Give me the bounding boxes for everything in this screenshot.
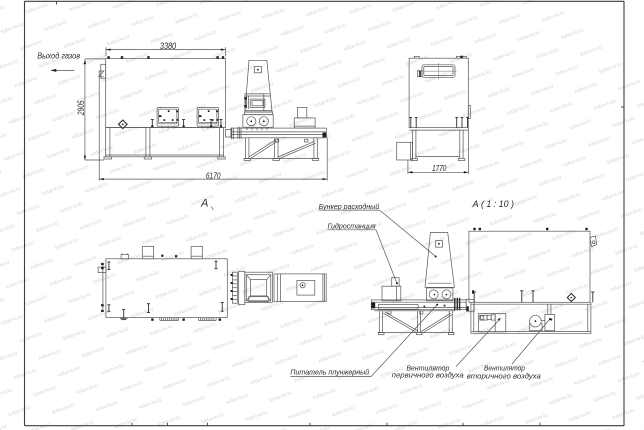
svg-text:kotlan-kv.kz: kotlan-kv.kz	[549, 393, 573, 407]
svg-text:kotlan-kv.kz: kotlan-kv.kz	[232, 63, 256, 77]
svg-text:kotlan-kv.kz: kotlan-kv.kz	[617, 371, 641, 385]
svg-text:kotlan-kv.kz: kotlan-kv.kz	[112, 289, 136, 303]
svg-text:kotlan-kv.kz: kotlan-kv.kz	[332, 405, 356, 419]
svg-text:kotlan-kv.kz: kotlan-kv.kz	[468, 69, 492, 83]
svg-text:kotlan-kv.kz: kotlan-kv.kz	[76, 382, 100, 396]
svg-text:Выход газов: Выход газов	[37, 51, 80, 60]
svg-text:kotlan-kv.kz: kotlan-kv.kz	[88, 17, 112, 31]
svg-text:kotlan-kv.kz: kotlan-kv.kz	[593, 98, 617, 112]
svg-text:kotlan-kv.kz: kotlan-kv.kz	[299, 333, 323, 347]
svg-text:kotlan-kv.kz: kotlan-kv.kz	[384, 201, 408, 215]
svg-text:kotlan-kv.kz: kotlan-kv.kz	[185, 230, 209, 244]
svg-text:kotlan-kv.kz: kotlan-kv.kz	[357, 93, 381, 107]
svg-text:kotlan-kv.kz: kotlan-kv.kz	[400, 383, 424, 397]
svg-text:kotlan-kv.kz: kotlan-kv.kz	[623, 334, 644, 348]
svg-text:kotlan-kv.kz: kotlan-kv.kz	[324, 314, 348, 328]
svg-text:kotlan-kv.kz: kotlan-kv.kz	[389, 164, 413, 178]
svg-text:kotlan-kv.kz: kotlan-kv.kz	[71, 419, 95, 430]
svg-text:kotlan-kv.kz: kotlan-kv.kz	[300, 41, 324, 55]
svg-text:kotlan-kv.kz: kotlan-kv.kz	[405, 346, 429, 360]
svg-text:kotlan-kv.kz: kotlan-kv.kz	[237, 319, 261, 333]
svg-text:kotlan-kv.kz: kotlan-kv.kz	[107, 34, 131, 48]
svg-text:kotlan-kv.kz: kotlan-kv.kz	[582, 172, 606, 186]
svg-text:kotlan-kv.kz: kotlan-kv.kz	[0, 259, 11, 273]
svg-text:kotlan-kv.kz: kotlan-kv.kz	[560, 319, 584, 333]
svg-text:kotlan-kv.kz: kotlan-kv.kz	[563, 155, 587, 169]
svg-text:kotlan-kv.kz: kotlan-kv.kz	[272, 225, 296, 239]
svg-text:kotlan-kv.kz: kotlan-kv.kz	[327, 149, 351, 163]
svg-text:kotlan-kv.kz: kotlan-kv.kz	[313, 95, 337, 109]
svg-text:kotlan-kv.kz: kotlan-kv.kz	[348, 294, 372, 308]
svg-text:kotlan-kv.kz: kotlan-kv.kz	[569, 118, 593, 132]
svg-text:kotlan-kv.kz: kotlan-kv.kz	[188, 358, 212, 372]
svg-text:kotlan-kv.kz: kotlan-kv.kz	[63, 36, 87, 50]
svg-text:kotlan-kv.kz: kotlan-kv.kz	[419, 400, 443, 414]
svg-text:kotlan-kv.kz: kotlan-kv.kz	[28, 129, 52, 143]
svg-text:kotlan-kv.kz: kotlan-kv.kz	[19, 331, 43, 345]
svg-text:kotlan-kv.kz: kotlan-kv.kz	[501, 140, 525, 154]
svg-text:kotlan-kv.kz: kotlan-kv.kz	[365, 184, 389, 198]
svg-text:kotlan-kv.kz: kotlan-kv.kz	[109, 161, 133, 175]
svg-text:kotlan-kv.kz: kotlan-kv.kz	[142, 233, 166, 247]
svg-text:kotlan-kv.kz: kotlan-kv.kz	[234, 191, 258, 205]
svg-text:kotlan-kv.kz: kotlan-kv.kz	[87, 309, 111, 323]
svg-text:kotlan-kv.kz: kotlan-kv.kz	[525, 412, 549, 426]
svg-text:kotlan-kv.kz: kotlan-kv.kz	[346, 167, 370, 181]
svg-text:kotlan-kv.kz: kotlan-kv.kz	[335, 240, 359, 254]
svg-text:kotlan-kv.kz: kotlan-kv.kz	[33, 93, 57, 107]
svg-text:kotlan-kv.kz: kotlan-kv.kz	[180, 267, 204, 281]
svg-text:kotlan-kv.kz: kotlan-kv.kz	[307, 424, 331, 430]
svg-text:kotlan-kv.kz: kotlan-kv.kz	[25, 2, 49, 16]
svg-text:kotlan-kv.kz: kotlan-kv.kz	[120, 88, 144, 102]
svg-text:kotlan-kv.kz: kotlan-kv.kz	[321, 186, 345, 200]
svg-text:kotlan-kv.kz: kotlan-kv.kz	[125, 343, 149, 357]
svg-text:kotlan-kv.kz: kotlan-kv.kz	[60, 201, 84, 215]
svg-text:kotlan-kv.kz: kotlan-kv.kz	[392, 0, 416, 14]
svg-text:kotlan-kv.kz: kotlan-kv.kz	[218, 9, 242, 23]
svg-text:kotlan-kv.kz: kotlan-kv.kz	[52, 402, 76, 416]
svg-text:kotlan-kv.kz: kotlan-kv.kz	[36, 220, 60, 234]
svg-text:kotlan-kv.kz: kotlan-kv.kz	[476, 159, 500, 173]
svg-text:Гидростанция: Гидростанция	[328, 222, 376, 231]
svg-text:1770: 1770	[432, 163, 446, 173]
svg-text:kotlan-kv.kz: kotlan-kv.kz	[291, 243, 315, 257]
svg-text:kotlan-kv.kz: kotlan-kv.kz	[419, 108, 443, 122]
svg-text:kotlan-kv.kz: kotlan-kv.kz	[631, 425, 644, 430]
svg-text:kotlan-kv.kz: kotlan-kv.kz	[558, 191, 582, 205]
svg-text:kotlan-kv.kz: kotlan-kv.kz	[201, 412, 225, 426]
svg-text:kotlan-kv.kz: kotlan-kv.kz	[598, 353, 622, 367]
svg-text:kotlan-kv.kz: kotlan-kv.kz	[362, 348, 386, 362]
svg-text:kotlan-kv.kz: kotlan-kv.kz	[408, 181, 432, 195]
svg-text:kotlan-kv.kz: kotlan-kv.kz	[245, 409, 269, 423]
svg-text:kotlan-kv.kz: kotlan-kv.kz	[44, 19, 68, 33]
svg-text:kotlan-kv.kz: kotlan-kv.kz	[522, 285, 546, 299]
svg-text:kotlan-kv.kz: kotlan-kv.kz	[6, 277, 30, 291]
svg-text:kotlan-kv.kz: kotlan-kv.kz	[397, 255, 421, 269]
svg-text:kotlan-kv.kz: kotlan-kv.kz	[114, 417, 138, 430]
svg-text:kotlan-kv.kz: kotlan-kv.kz	[329, 277, 353, 291]
svg-text:kotlan-kv.kz: kotlan-kv.kz	[639, 223, 644, 237]
svg-text:kotlan-kv.kz: kotlan-kv.kz	[368, 19, 392, 33]
svg-text:kotlan-kv.kz: kotlan-kv.kz	[79, 218, 103, 232]
svg-text:kotlan-kv.kz: kotlan-kv.kz	[278, 189, 302, 203]
svg-text:kotlan-kv.kz: kotlan-kv.kz	[544, 137, 568, 151]
svg-text:kotlan-kv.kz: kotlan-kv.kz	[286, 279, 310, 293]
svg-text:kotlan-kv.kz: kotlan-kv.kz	[449, 343, 473, 357]
svg-text:kotlan-kv.kz: kotlan-kv.kz	[362, 56, 386, 70]
svg-text:kotlan-kv.kz: kotlan-kv.kz	[47, 147, 71, 161]
svg-text:kotlan-kv.kz: kotlan-kv.kz	[462, 397, 486, 411]
svg-text:А ( 1 : 10 ): А ( 1 : 10 )	[472, 199, 514, 210]
svg-text:kotlan-kv.kz: kotlan-kv.kz	[430, 34, 454, 48]
svg-text:kotlan-kv.kz: kotlan-kv.kz	[8, 404, 32, 418]
svg-text:Питатель плунжерный: Питатель плунжерный	[290, 368, 369, 377]
svg-text:kotlan-kv.kz: kotlan-kv.kz	[131, 14, 155, 28]
svg-text:kotlan-kv.kz: kotlan-kv.kz	[599, 61, 623, 75]
svg-text:kotlan-kv.kz: kotlan-kv.kz	[172, 176, 196, 190]
svg-text:kotlan-kv.kz: kotlan-kv.kz	[242, 282, 266, 296]
svg-text:kotlan-kv.kz: kotlan-kv.kz	[85, 181, 109, 195]
svg-text:kotlan-kv.kz: kotlan-kv.kz	[289, 115, 313, 129]
svg-text:kotlan-kv.kz: kotlan-kv.kz	[536, 339, 560, 353]
svg-text:kotlan-kv.kz: kotlan-kv.kz	[41, 183, 65, 197]
svg-text:kotlan-kv.kz: kotlan-kv.kz	[550, 101, 574, 115]
svg-text:kotlan-kv.kz: kotlan-kv.kz	[634, 260, 644, 274]
svg-text:kotlan-kv.kz: kotlan-kv.kz	[585, 299, 609, 313]
svg-text:kotlan-kv.kz: kotlan-kv.kz	[403, 218, 427, 232]
svg-text:kotlan-kv.kz: kotlan-kv.kz	[555, 64, 579, 78]
svg-text:kotlan-kv.kz: kotlan-kv.kz	[101, 71, 125, 85]
svg-text:kotlan-kv.kz: kotlan-kv.kz	[318, 351, 342, 365]
svg-text:kotlan-kv.kz: kotlan-kv.kz	[229, 228, 253, 242]
svg-text:kotlan-kv.kz: kotlan-kv.kz	[33, 385, 57, 399]
svg-text:Бункер расходный: Бункер расходный	[319, 202, 380, 211]
svg-text:kotlan-kv.kz: kotlan-kv.kz	[11, 240, 35, 254]
svg-text:kotlan-kv.kz: kotlan-kv.kz	[155, 287, 179, 301]
svg-text:kotlan-kv.kz: kotlan-kv.kz	[492, 341, 516, 355]
svg-text:kotlan-kv.kz: kotlan-kv.kz	[262, 7, 286, 21]
svg-text:kotlan-kv.kz: kotlan-kv.kz	[269, 390, 293, 404]
svg-text:kotlan-kv.kz: kotlan-kv.kz	[533, 211, 557, 225]
svg-text:kotlan-kv.kz: kotlan-kv.kz	[204, 247, 228, 261]
svg-text:kotlan-kv.kz: kotlan-kv.kz	[609, 280, 633, 294]
svg-text:kotlan-kv.kz: kotlan-kv.kz	[253, 208, 277, 222]
svg-text:kotlan-kv.kz: kotlan-kv.kz	[571, 245, 595, 259]
svg-text:kotlan-kv.kz: kotlan-kv.kz	[509, 231, 533, 245]
svg-text:kotlan-kv.kz: kotlan-kv.kz	[297, 206, 321, 220]
svg-text:kotlan-kv.kz: kotlan-kv.kz	[52, 110, 76, 124]
svg-text:kotlan-kv.kz: kotlan-kv.kz	[58, 73, 82, 87]
svg-text:kotlan-kv.kz: kotlan-kv.kz	[194, 29, 218, 43]
svg-text:A: A	[200, 197, 208, 209]
svg-text:kotlan-kv.kz: kotlan-kv.kz	[479, 287, 503, 301]
svg-text:kotlan-kv.kz: kotlan-kv.kz	[482, 123, 506, 137]
svg-text:kotlan-kv.kz: kotlan-kv.kz	[294, 78, 318, 92]
svg-text:kotlan-kv.kz: kotlan-kv.kz	[495, 177, 519, 191]
svg-text:kotlan-kv.kz: kotlan-kv.kz	[324, 22, 348, 36]
svg-text:kotlan-kv.kz: kotlan-kv.kz	[425, 71, 449, 85]
svg-text:kotlan-kv.kz: kotlan-kv.kz	[520, 157, 544, 171]
svg-text:kotlan-kv.kz: kotlan-kv.kz	[248, 245, 272, 259]
svg-text:kotlan-kv.kz: kotlan-kv.kz	[163, 377, 187, 391]
svg-text:kotlan-kv.kz: kotlan-kv.kz	[555, 356, 579, 370]
svg-text:kotlan-kv.kz: kotlan-kv.kz	[126, 51, 150, 65]
svg-text:kotlan-kv.kz: kotlan-kv.kz	[452, 179, 476, 193]
svg-text:kotlan-kv.kz: kotlan-kv.kz	[207, 375, 231, 389]
svg-text:kotlan-kv.kz: kotlan-kv.kz	[104, 198, 128, 212]
svg-text:kotlan-kv.kz: kotlan-kv.kz	[310, 260, 334, 274]
svg-text:kotlan-kv.kz: kotlan-kv.kz	[281, 24, 305, 38]
svg-text:kotlan-kv.kz: kotlan-kv.kz	[392, 292, 416, 306]
svg-text:kotlan-kv.kz: kotlan-kv.kz	[615, 243, 639, 257]
svg-text:kotlan-kv.kz: kotlan-kv.kz	[0, 424, 8, 430]
svg-text:kotlan-kv.kz: kotlan-kv.kz	[212, 338, 236, 352]
svg-text:kotlan-kv.kz: kotlan-kv.kz	[240, 154, 264, 168]
svg-text:kotlan-kv.kz: kotlan-kv.kz	[63, 328, 87, 342]
svg-text:kotlan-kv.kz: kotlan-kv.kz	[174, 304, 198, 318]
svg-text:kotlan-kv.kz: kotlan-kv.kz	[226, 392, 250, 406]
svg-text:kotlan-kv.kz: kotlan-kv.kz	[147, 196, 171, 210]
svg-text:kotlan-kv.kz: kotlan-kv.kz	[117, 252, 141, 266]
svg-text:kotlan-kv.kz: kotlan-kv.kz	[637, 96, 644, 110]
svg-text:kotlan-kv.kz: kotlan-kv.kz	[514, 194, 538, 208]
svg-text:kotlan-kv.kz: kotlan-kv.kz	[44, 311, 68, 325]
svg-text:kotlan-kv.kz: kotlan-kv.kz	[539, 174, 563, 188]
svg-text:kotlan-kv.kz: kotlan-kv.kz	[123, 215, 147, 229]
svg-text:kotlan-kv.kz: kotlan-kv.kz	[381, 73, 405, 87]
svg-text:kotlan-kv.kz: kotlan-kv.kz	[193, 321, 217, 335]
svg-text:kotlan-kv.kz: kotlan-kv.kz	[22, 166, 46, 180]
svg-text:kotlan-kv.kz: kotlan-kv.kz	[628, 297, 644, 311]
svg-text:kotlan-kv.kz: kotlan-kv.kz	[250, 373, 274, 387]
svg-text:kotlan-kv.kz: kotlan-kv.kz	[607, 152, 631, 166]
svg-text:kotlan-kv.kz: kotlan-kv.kz	[446, 216, 470, 230]
svg-text:kotlan-kv.kz: kotlan-kv.kz	[237, 27, 261, 41]
svg-text:kotlan-kv.kz: kotlan-kv.kz	[0, 4, 6, 18]
svg-text:kotlan-kv.kz: kotlan-kv.kz	[531, 83, 555, 97]
svg-text:kotlan-kv.kz: kotlan-kv.kz	[136, 269, 160, 283]
svg-text:kotlan-kv.kz: kotlan-kv.kz	[256, 44, 280, 58]
svg-text:kotlan-kv.kz: kotlan-kv.kz	[270, 98, 294, 112]
svg-text:kotlan-kv.kz: kotlan-kv.kz	[251, 81, 275, 95]
svg-text:kotlan-kv.kz: kotlan-kv.kz	[626, 169, 644, 183]
svg-text:kotlan-kv.kz: kotlan-kv.kz	[338, 76, 362, 90]
svg-text:kotlan-kv.kz: kotlan-kv.kz	[438, 125, 462, 139]
svg-text:kotlan-kv.kz: kotlan-kv.kz	[590, 263, 614, 277]
svg-text:kotlan-kv.kz: kotlan-kv.kz	[481, 415, 505, 429]
svg-text:kotlan-kv.kz: kotlan-kv.kz	[93, 272, 117, 286]
svg-text:kotlan-kv.kz: kotlan-kv.kz	[166, 213, 190, 227]
svg-text:kotlan-kv.kz: kotlan-kv.kz	[354, 257, 378, 271]
svg-text:kotlan-kv.kz: kotlan-kv.kz	[139, 397, 163, 411]
svg-text:kotlan-kv.kz: kotlan-kv.kz	[484, 250, 508, 264]
svg-text:kotlan-kv.kz: kotlan-kv.kz	[68, 291, 92, 305]
svg-text:kotlan-kv.kz: kotlan-kv.kz	[332, 113, 356, 127]
svg-text:kotlan-kv.kz: kotlan-kv.kz	[343, 331, 367, 345]
svg-text:kotlan-kv.kz: kotlan-kv.kz	[416, 272, 440, 286]
svg-text:kotlan-kv.kz: kotlan-kv.kz	[517, 29, 541, 43]
svg-text:kotlan-kv.kz: kotlan-kv.kz	[528, 248, 552, 262]
svg-text:kotlan-kv.kz: kotlan-kv.kz	[182, 395, 206, 409]
svg-text:kotlan-kv.kz: kotlan-kv.kz	[313, 387, 337, 401]
svg-text:kotlan-kv.kz: kotlan-kv.kz	[221, 137, 245, 151]
svg-text:kotlan-kv.kz: kotlan-kv.kz	[498, 12, 522, 26]
svg-text:6170: 6170	[206, 170, 221, 180]
svg-text:kotlan-kv.kz: kotlan-kv.kz	[231, 355, 255, 369]
svg-text:kotlan-kv.kz: kotlan-kv.kz	[370, 147, 394, 161]
svg-text:kotlan-kv.kz: kotlan-kv.kz	[25, 294, 49, 308]
svg-text:kotlan-kv.kz: kotlan-kv.kz	[0, 95, 14, 109]
svg-text:kotlan-kv.kz: kotlan-kv.kz	[542, 10, 566, 24]
svg-text:kotlan-kv.kz: kotlan-kv.kz	[57, 365, 81, 379]
svg-text:kotlan-kv.kz: kotlan-kv.kz	[161, 250, 185, 264]
svg-text:kotlan-kv.kz: kotlan-kv.kz	[593, 390, 617, 404]
svg-text:kotlan-kv.kz: kotlan-kv.kz	[0, 186, 22, 200]
svg-text:kotlan-kv.kz: kotlan-kv.kz	[506, 103, 530, 117]
svg-text:kotlan-kv.kz: kotlan-kv.kz	[580, 44, 604, 58]
svg-text:kotlan-kv.kz: kotlan-kv.kz	[386, 329, 410, 343]
svg-text:kotlan-kv.kz: kotlan-kv.kz	[9, 112, 33, 126]
svg-text:kotlan-kv.kz: kotlan-kv.kz	[177, 139, 201, 153]
svg-text:kotlan-kv.kz: kotlan-kv.kz	[577, 209, 601, 223]
svg-text:kotlan-kv.kz: kotlan-kv.kz	[30, 257, 54, 271]
svg-text:kotlan-kv.kz: kotlan-kv.kz	[568, 410, 592, 424]
svg-text:kotlan-kv.kz: kotlan-kv.kz	[115, 125, 139, 139]
svg-text:kotlan-kv.kz: kotlan-kv.kz	[349, 2, 373, 16]
svg-text:kotlan-kv.kz: kotlan-kv.kz	[120, 380, 144, 394]
svg-text:kotlan-kv.kz: kotlan-kv.kz	[17, 203, 41, 217]
svg-text:kotlan-kv.kz: kotlan-kv.kz	[395, 127, 419, 141]
svg-text:kotlan-kv.kz: kotlan-kv.kz	[444, 88, 468, 102]
svg-text:kotlan-kv.kz: kotlan-kv.kz	[145, 68, 169, 82]
svg-text:kotlan-kv.kz: kotlan-kv.kz	[376, 110, 400, 124]
svg-text:kotlan-kv.kz: kotlan-kv.kz	[14, 367, 38, 381]
svg-text:kotlan-kv.kz: kotlan-kv.kz	[153, 159, 177, 173]
svg-text:kotlan-kv.kz: kotlan-kv.kz	[275, 61, 299, 75]
svg-text:kotlan-kv.kz: kotlan-kv.kz	[1, 21, 25, 35]
svg-text:kotlan-kv.kz: kotlan-kv.kz	[49, 274, 73, 288]
svg-text:kotlan-kv.kz: kotlan-kv.kz	[0, 387, 13, 401]
svg-text:первичного воздуха: первичного воздуха	[392, 370, 464, 379]
svg-text:kotlan-kv.kz: kotlan-kv.kz	[438, 417, 462, 430]
svg-text:вторичного воздуха: вторичного воздуха	[467, 371, 541, 380]
svg-text:kotlan-kv.kz: kotlan-kv.kz	[55, 237, 79, 251]
svg-text:kotlan-kv.kz: kotlan-kv.kz	[302, 169, 326, 183]
svg-text:kotlan-kv.kz: kotlan-kv.kz	[259, 171, 283, 185]
svg-text:2905: 2905	[76, 100, 86, 116]
svg-text:kotlan-kv.kz: kotlan-kv.kz	[566, 282, 590, 296]
svg-text:kotlan-kv.kz: kotlan-kv.kz	[435, 289, 459, 303]
svg-text:kotlan-kv.kz: kotlan-kv.kz	[66, 164, 90, 178]
svg-text:kotlan-kv.kz: kotlan-kv.kz	[512, 66, 536, 80]
svg-text:kotlan-kv.kz: kotlan-kv.kz	[101, 363, 125, 377]
svg-text:kotlan-kv.kz: kotlan-kv.kz	[351, 130, 375, 144]
svg-text:kotlan-kv.kz: kotlan-kv.kz	[596, 226, 620, 240]
svg-text:kotlan-kv.kz: kotlan-kv.kz	[199, 284, 223, 298]
svg-text:kotlan-kv.kz: kotlan-kv.kz	[188, 66, 212, 80]
svg-text:kotlan-kv.kz: kotlan-kv.kz	[343, 39, 367, 53]
svg-text:kotlan-kv.kz: kotlan-kv.kz	[430, 326, 454, 340]
svg-text:kotlan-kv.kz: kotlan-kv.kz	[106, 326, 130, 340]
svg-text:kotlan-kv.kz: kotlan-kv.kz	[82, 53, 106, 67]
svg-text:kotlan-kv.kz: kotlan-kv.kz	[493, 49, 517, 63]
svg-text:kotlan-kv.kz: kotlan-kv.kz	[498, 304, 522, 318]
svg-text:kotlan-kv.kz: kotlan-kv.kz	[82, 345, 106, 359]
svg-text:kotlan-kv.kz: kotlan-kv.kz	[411, 17, 435, 31]
svg-text:kotlan-kv.kz: kotlan-kv.kz	[98, 235, 122, 249]
svg-text:kotlan-kv.kz: kotlan-kv.kz	[264, 135, 288, 149]
svg-text:kotlan-kv.kz: kotlan-kv.kz	[196, 157, 220, 171]
svg-text:kotlan-kv.kz: kotlan-kv.kz	[525, 120, 549, 134]
svg-text:kotlan-kv.kz: kotlan-kv.kz	[574, 373, 598, 387]
svg-text:kotlan-kv.kz: kotlan-kv.kz	[164, 85, 188, 99]
svg-text:kotlan-kv.kz: kotlan-kv.kz	[305, 5, 329, 19]
svg-text:kotlan-kv.kz: kotlan-kv.kz	[427, 199, 451, 213]
svg-text:kotlan-kv.kz: kotlan-kv.kz	[0, 58, 19, 72]
svg-text:kotlan-kv.kz: kotlan-kv.kz	[0, 296, 5, 310]
svg-text:kotlan-kv.kz: kotlan-kv.kz	[305, 297, 329, 311]
svg-text:kotlan-kv.kz: kotlan-kv.kz	[0, 350, 19, 364]
svg-text:kotlan-kv.kz: kotlan-kv.kz	[490, 213, 514, 227]
svg-text:kotlan-kv.kz: kotlan-kv.kz	[0, 223, 16, 237]
svg-text:kotlan-kv.kz: kotlan-kv.kz	[183, 103, 207, 117]
svg-text:kotlan-kv.kz: kotlan-kv.kz	[280, 316, 304, 330]
svg-text:kotlan-kv.kz: kotlan-kv.kz	[210, 211, 234, 225]
svg-text:kotlan-kv.kz: kotlan-kv.kz	[74, 255, 98, 269]
svg-text:kotlan-kv.kz: kotlan-kv.kz	[443, 380, 467, 394]
svg-text:kotlan-kv.kz: kotlan-kv.kz	[441, 253, 465, 267]
svg-text:kotlan-kv.kz: kotlan-kv.kz	[387, 37, 411, 51]
svg-text:kotlan-kv.kz: kotlan-kv.kz	[175, 12, 199, 26]
svg-text:kotlan-kv.kz: kotlan-kv.kz	[552, 228, 576, 242]
svg-text:kotlan-kv.kz: kotlan-kv.kz	[90, 144, 114, 158]
svg-text:kotlan-kv.kz: kotlan-kv.kz	[0, 313, 24, 327]
svg-text:kotlan-kv.kz: kotlan-kv.kz	[14, 75, 38, 89]
svg-text:kotlan-kv.kz: kotlan-kv.kz	[579, 336, 603, 350]
svg-text:kotlan-kv.kz: kotlan-kv.kz	[0, 132, 8, 146]
svg-text:kotlan-kv.kz: kotlan-kv.kz	[460, 270, 484, 284]
svg-text:kotlan-kv.kz: kotlan-kv.kz	[95, 399, 119, 413]
svg-text:kotlan-kv.kz: kotlan-kv.kz	[503, 267, 527, 281]
svg-text:kotlan-kv.kz: kotlan-kv.kz	[457, 142, 481, 156]
svg-text:3380: 3380	[160, 40, 177, 51]
svg-text:kotlan-kv.kz: kotlan-kv.kz	[71, 127, 95, 141]
svg-text:kotlan-kv.kz: kotlan-kv.kz	[150, 323, 174, 337]
svg-text:kotlan-kv.kz: kotlan-kv.kz	[375, 402, 399, 416]
svg-text:kotlan-kv.kz: kotlan-kv.kz	[207, 83, 231, 97]
svg-text:kotlan-kv.kz: kotlan-kv.kz	[601, 189, 625, 203]
svg-text:kotlan-kv.kz: kotlan-kv.kz	[561, 27, 585, 41]
svg-text:kotlan-kv.kz: kotlan-kv.kz	[319, 59, 343, 73]
svg-text:kotlan-kv.kz: kotlan-kv.kz	[536, 47, 560, 61]
svg-text:kotlan-kv.kz: kotlan-kv.kz	[631, 133, 644, 147]
svg-text:kotlan-kv.kz: kotlan-kv.kz	[213, 46, 237, 60]
svg-text:kotlan-kv.kz: kotlan-kv.kz	[618, 79, 642, 93]
svg-text:kotlan-kv.kz: kotlan-kv.kz	[487, 86, 511, 100]
svg-text:kotlan-kv.kz: kotlan-kv.kz	[455, 15, 479, 29]
svg-text:kotlan-kv.kz: kotlan-kv.kz	[588, 135, 612, 149]
svg-text:kotlan-kv.kz: kotlan-kv.kz	[69, 0, 93, 13]
svg-text:kotlan-kv.kz: kotlan-kv.kz	[636, 388, 644, 402]
svg-text:kotlan-kv.kz: kotlan-kv.kz	[169, 341, 193, 355]
svg-text:kotlan-kv.kz: kotlan-kv.kz	[131, 306, 155, 320]
svg-text:kotlan-kv.kz: kotlan-kv.kz	[3, 149, 27, 163]
svg-text:kotlan-kv.kz: kotlan-kv.kz	[128, 179, 152, 193]
svg-text:kotlan-kv.kz: kotlan-kv.kz	[574, 81, 598, 95]
svg-text:kotlan-kv.kz: kotlan-kv.kz	[356, 385, 380, 399]
